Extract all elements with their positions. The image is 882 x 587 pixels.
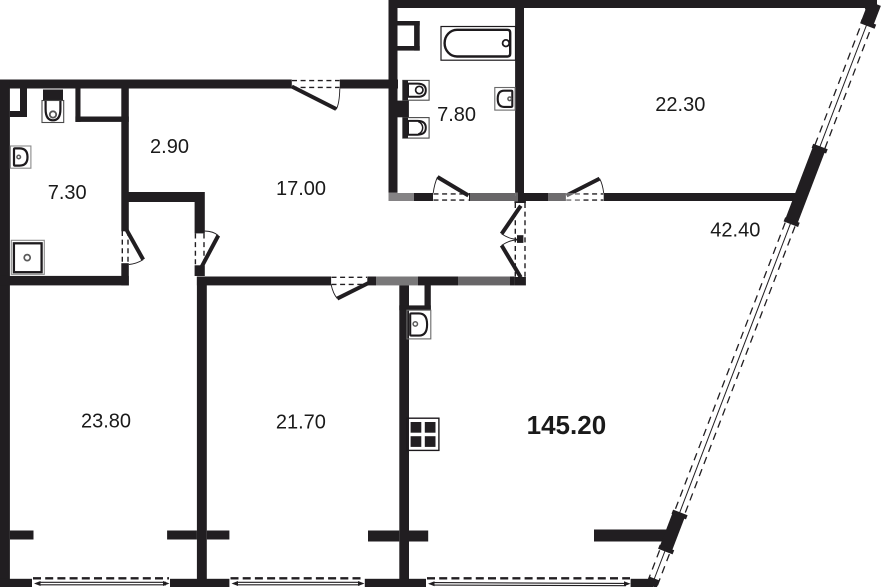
svg-text:21.70: 21.70 [276,412,326,434]
svg-text:42.40: 42.40 [710,220,760,242]
svg-text:17.00: 17.00 [276,178,326,200]
svg-text:145.20: 145.20 [527,410,607,440]
svg-text:22.30: 22.30 [655,94,705,116]
svg-text:2.90: 2.90 [150,136,189,158]
svg-text:7.30: 7.30 [48,182,87,204]
svg-text:23.80: 23.80 [81,411,131,433]
svg-text:7.80: 7.80 [437,104,476,126]
